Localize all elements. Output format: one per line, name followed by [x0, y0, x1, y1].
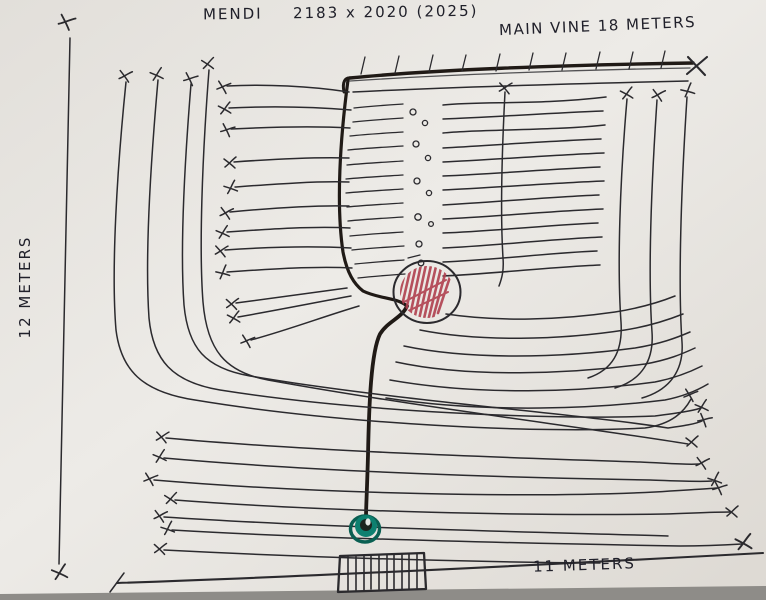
photo-of-sketch: MENDI 2183 x 2020 (2025) MAIN VINE 18 ME…	[0, 0, 766, 600]
sketch-canvas	[0, 0, 766, 600]
